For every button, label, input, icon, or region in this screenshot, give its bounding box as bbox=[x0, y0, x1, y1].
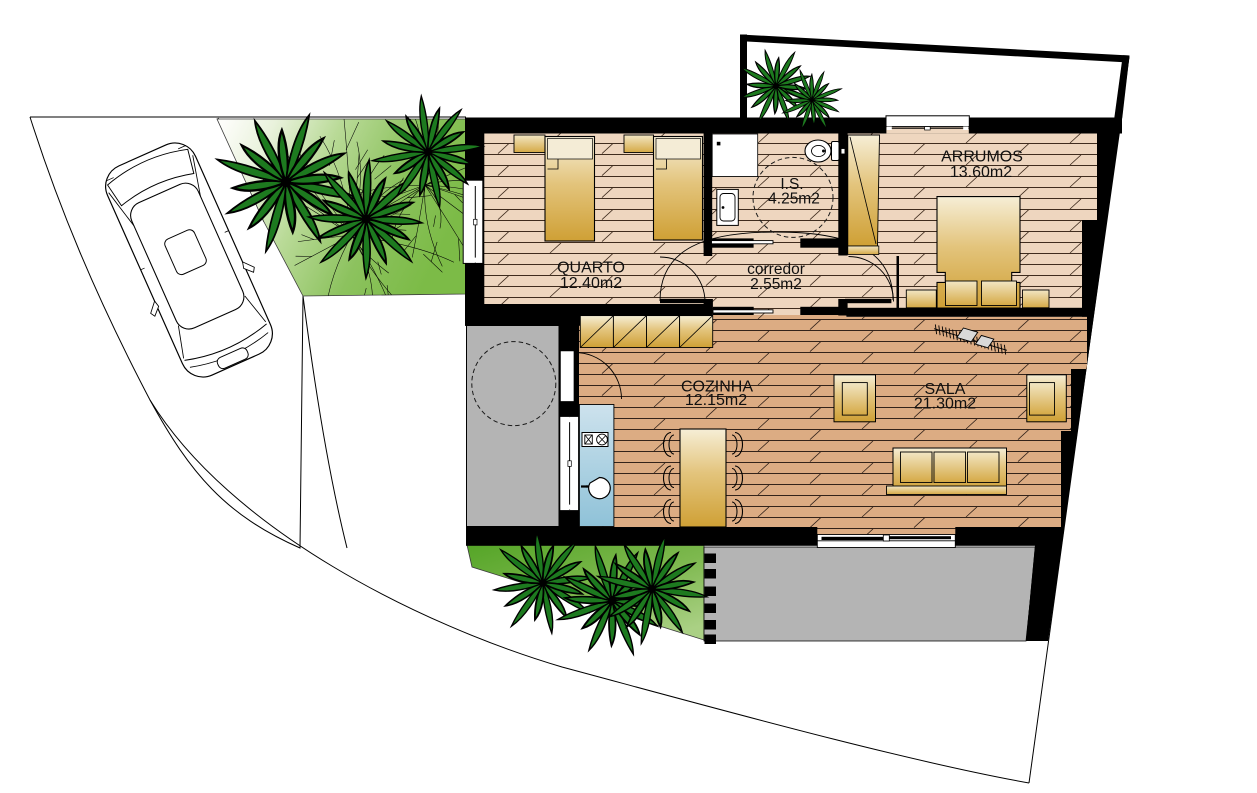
svg-text:4.25m2: 4.25m2 bbox=[768, 191, 820, 208]
svg-text:12.15m2: 12.15m2 bbox=[685, 392, 747, 409]
svg-text:2.55m2: 2.55m2 bbox=[750, 276, 802, 293]
svg-text:QUARTO: QUARTO bbox=[557, 260, 625, 277]
svg-text:12.40m2: 12.40m2 bbox=[560, 275, 622, 292]
svg-text:13.60m2: 13.60m2 bbox=[950, 164, 1012, 181]
svg-text:ARRUMOS: ARRUMOS bbox=[941, 149, 1023, 166]
svg-text:21.30m2: 21.30m2 bbox=[914, 396, 976, 413]
